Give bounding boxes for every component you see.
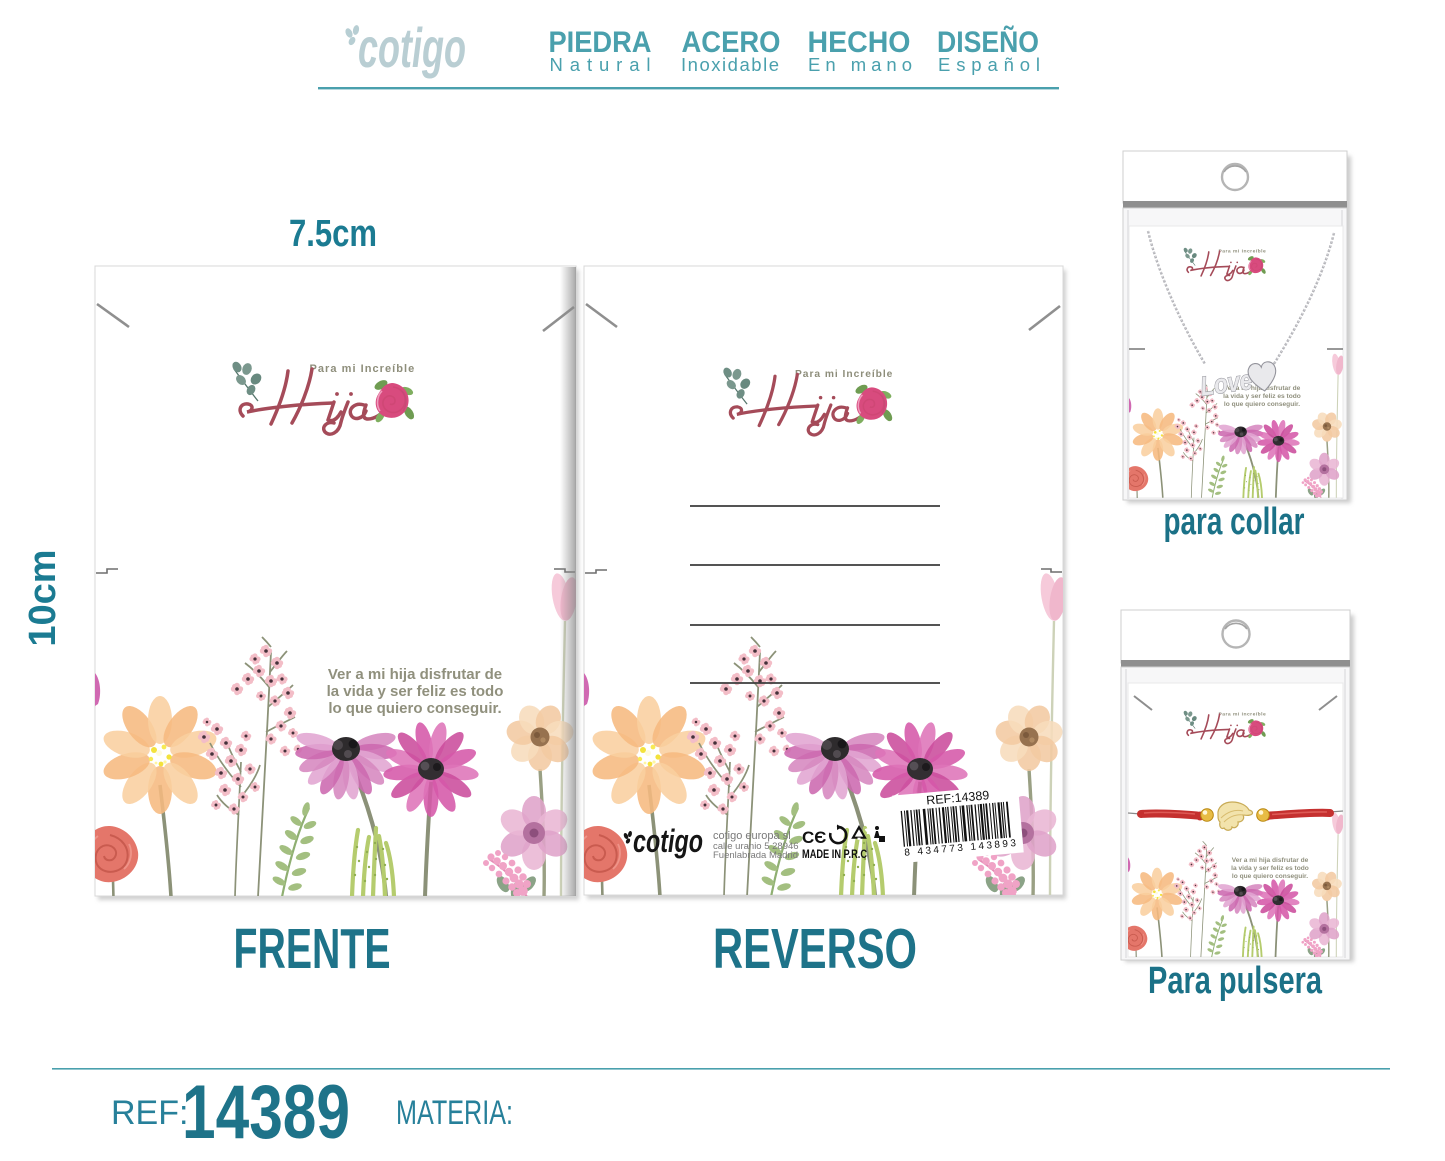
svg-text:lo que quiero conseguir.: lo que quiero conseguir. bbox=[1224, 401, 1300, 408]
svg-text:cotigo: cotigo bbox=[633, 823, 703, 859]
svg-text:cotigo: cotigo bbox=[358, 16, 466, 79]
svg-text:FRENTE: FRENTE bbox=[234, 917, 391, 981]
svg-text:10cm: 10cm bbox=[22, 549, 64, 646]
svg-text:14389: 14389 bbox=[182, 1070, 350, 1155]
svg-text:para collar: para collar bbox=[1164, 501, 1305, 543]
svg-text:Fuenlabrada Madrid: Fuenlabrada Madrid bbox=[713, 850, 798, 861]
svg-text:REF:: REF: bbox=[111, 1094, 188, 1132]
svg-text:MATERIA:: MATERIA: bbox=[396, 1094, 513, 1132]
svg-text:la vida y ser feliz es todo: la vida y ser feliz es todo bbox=[327, 683, 504, 700]
svg-text:Ver a mi hija disfrutar de: Ver a mi hija disfrutar de bbox=[1232, 857, 1309, 864]
svg-text:7.5cm: 7.5cm bbox=[289, 213, 377, 255]
svg-text:CЄ: CЄ bbox=[802, 828, 826, 847]
svg-text:MADE IN P.R.C: MADE IN P.R.C bbox=[802, 847, 867, 861]
svg-text:lo que quiero conseguir.: lo que quiero conseguir. bbox=[1232, 873, 1308, 880]
svg-text:Inoxidable: Inoxidable bbox=[681, 54, 779, 75]
svg-text:Ver a mi hija disfrutar de: Ver a mi hija disfrutar de bbox=[328, 666, 502, 683]
svg-text:Para pulsera: Para pulsera bbox=[1148, 960, 1323, 1002]
svg-text:lo que quiero conseguir.: lo que quiero conseguir. bbox=[328, 700, 501, 717]
svg-text:la vida y ser feliz es todo: la vida y ser feliz es todo bbox=[1231, 865, 1309, 872]
svg-text:REVERSO: REVERSO bbox=[713, 917, 917, 981]
